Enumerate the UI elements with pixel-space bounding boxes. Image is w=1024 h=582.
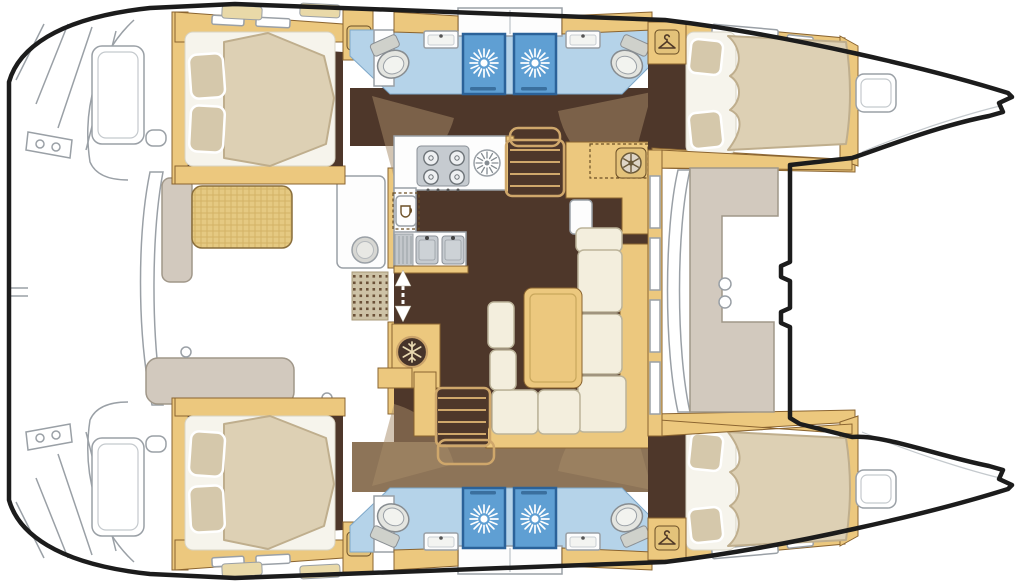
galley-counter-trim	[394, 266, 468, 273]
sofa-cushion	[578, 314, 622, 374]
sofa-cushion	[578, 250, 622, 312]
washer-icon-inner	[357, 242, 374, 259]
transom-step-line	[58, 27, 92, 128]
cockpit-side-cushion	[162, 178, 192, 282]
port-heads	[350, 8, 658, 94]
galley-sink-bowl	[445, 240, 461, 260]
sink-icon	[566, 533, 600, 550]
forward-cockpit	[648, 150, 852, 436]
double-bed	[224, 33, 334, 166]
stair-cabinet	[414, 372, 436, 436]
stove-burner	[424, 170, 438, 184]
cabin-aft-port	[172, 10, 373, 184]
bath-cabinet	[394, 548, 458, 570]
pillow	[189, 53, 226, 99]
cabin-aft-starboard	[172, 398, 373, 572]
sofa-cushion	[576, 228, 622, 252]
stern-handle	[146, 436, 166, 452]
double-bed	[224, 416, 334, 549]
faucet	[451, 236, 455, 240]
floor-plan	[0, 0, 1024, 582]
hanger-icon	[655, 526, 679, 550]
stern-handle	[146, 130, 166, 146]
shower-door-handle	[521, 87, 547, 91]
stern-locker	[92, 46, 144, 144]
salon-front-window	[650, 300, 660, 352]
forward-lounge	[690, 168, 778, 412]
cabin-forward-port	[648, 20, 858, 172]
stove-burner	[450, 170, 464, 184]
sofa-cushion	[538, 390, 580, 434]
stove-burner	[424, 151, 438, 165]
deck-hatch-icon	[856, 470, 896, 508]
pillow	[688, 110, 724, 149]
lounge-seat-back	[668, 170, 691, 412]
pillow	[688, 38, 723, 75]
drainboard	[395, 234, 413, 266]
cabin-wall	[175, 166, 345, 184]
sink-icon	[566, 31, 600, 48]
cup-holder	[719, 278, 731, 290]
aft-galley-module	[378, 368, 412, 388]
stove-burner	[450, 151, 464, 165]
sink-icon	[424, 31, 458, 48]
shower-door-handle	[470, 491, 496, 495]
stair-well	[438, 388, 488, 444]
cockpit-grate	[352, 272, 388, 320]
pillow	[688, 506, 723, 543]
sink-icon	[424, 533, 458, 550]
starboard-heads	[350, 488, 658, 574]
fridge-icon	[396, 196, 416, 226]
deck-hatch-icon	[856, 74, 896, 112]
snowflake-icon	[397, 337, 427, 367]
faucet	[425, 236, 429, 240]
salon-table	[524, 288, 582, 388]
galley-sink-bowl	[419, 240, 435, 260]
roof-hatch	[222, 5, 263, 20]
stool	[490, 350, 516, 390]
pillow	[189, 485, 225, 533]
sofa-corner-cushion	[578, 376, 626, 432]
salon-front-window	[650, 176, 660, 228]
salon	[350, 88, 660, 492]
stern-bracket	[26, 132, 72, 158]
sofa-cushion	[492, 390, 538, 434]
stern-bracket-hole	[36, 140, 44, 148]
pillow	[688, 432, 724, 471]
aft-bench	[146, 358, 294, 404]
stern-bracket-hole	[52, 431, 60, 439]
salon-front-window	[650, 362, 660, 414]
stern-bracket-hole	[36, 434, 44, 442]
double-bed	[728, 432, 850, 546]
shower-door-handle	[521, 491, 547, 495]
stern-locker	[92, 438, 144, 536]
aft-cockpit	[141, 168, 397, 414]
stern-bracket	[26, 424, 72, 450]
stern-bracket-hole	[52, 143, 60, 151]
transom-step-line	[58, 454, 92, 555]
cabin-wall	[175, 398, 345, 416]
roof-hatch	[222, 562, 263, 577]
stool	[488, 302, 514, 348]
cup-holder	[719, 296, 731, 308]
shower-door-handle	[470, 87, 496, 91]
pillow	[189, 105, 225, 153]
aft-boarding-ladder	[10, 288, 28, 296]
cockpit-bench-cushion	[192, 186, 292, 248]
double-bed	[728, 36, 850, 150]
hanger-icon	[655, 30, 679, 54]
table-leg	[181, 347, 191, 357]
pillow	[189, 431, 226, 477]
floor-plan-svg	[0, 0, 1024, 582]
instrument-icon	[616, 148, 646, 178]
salon-front-window	[650, 238, 660, 290]
